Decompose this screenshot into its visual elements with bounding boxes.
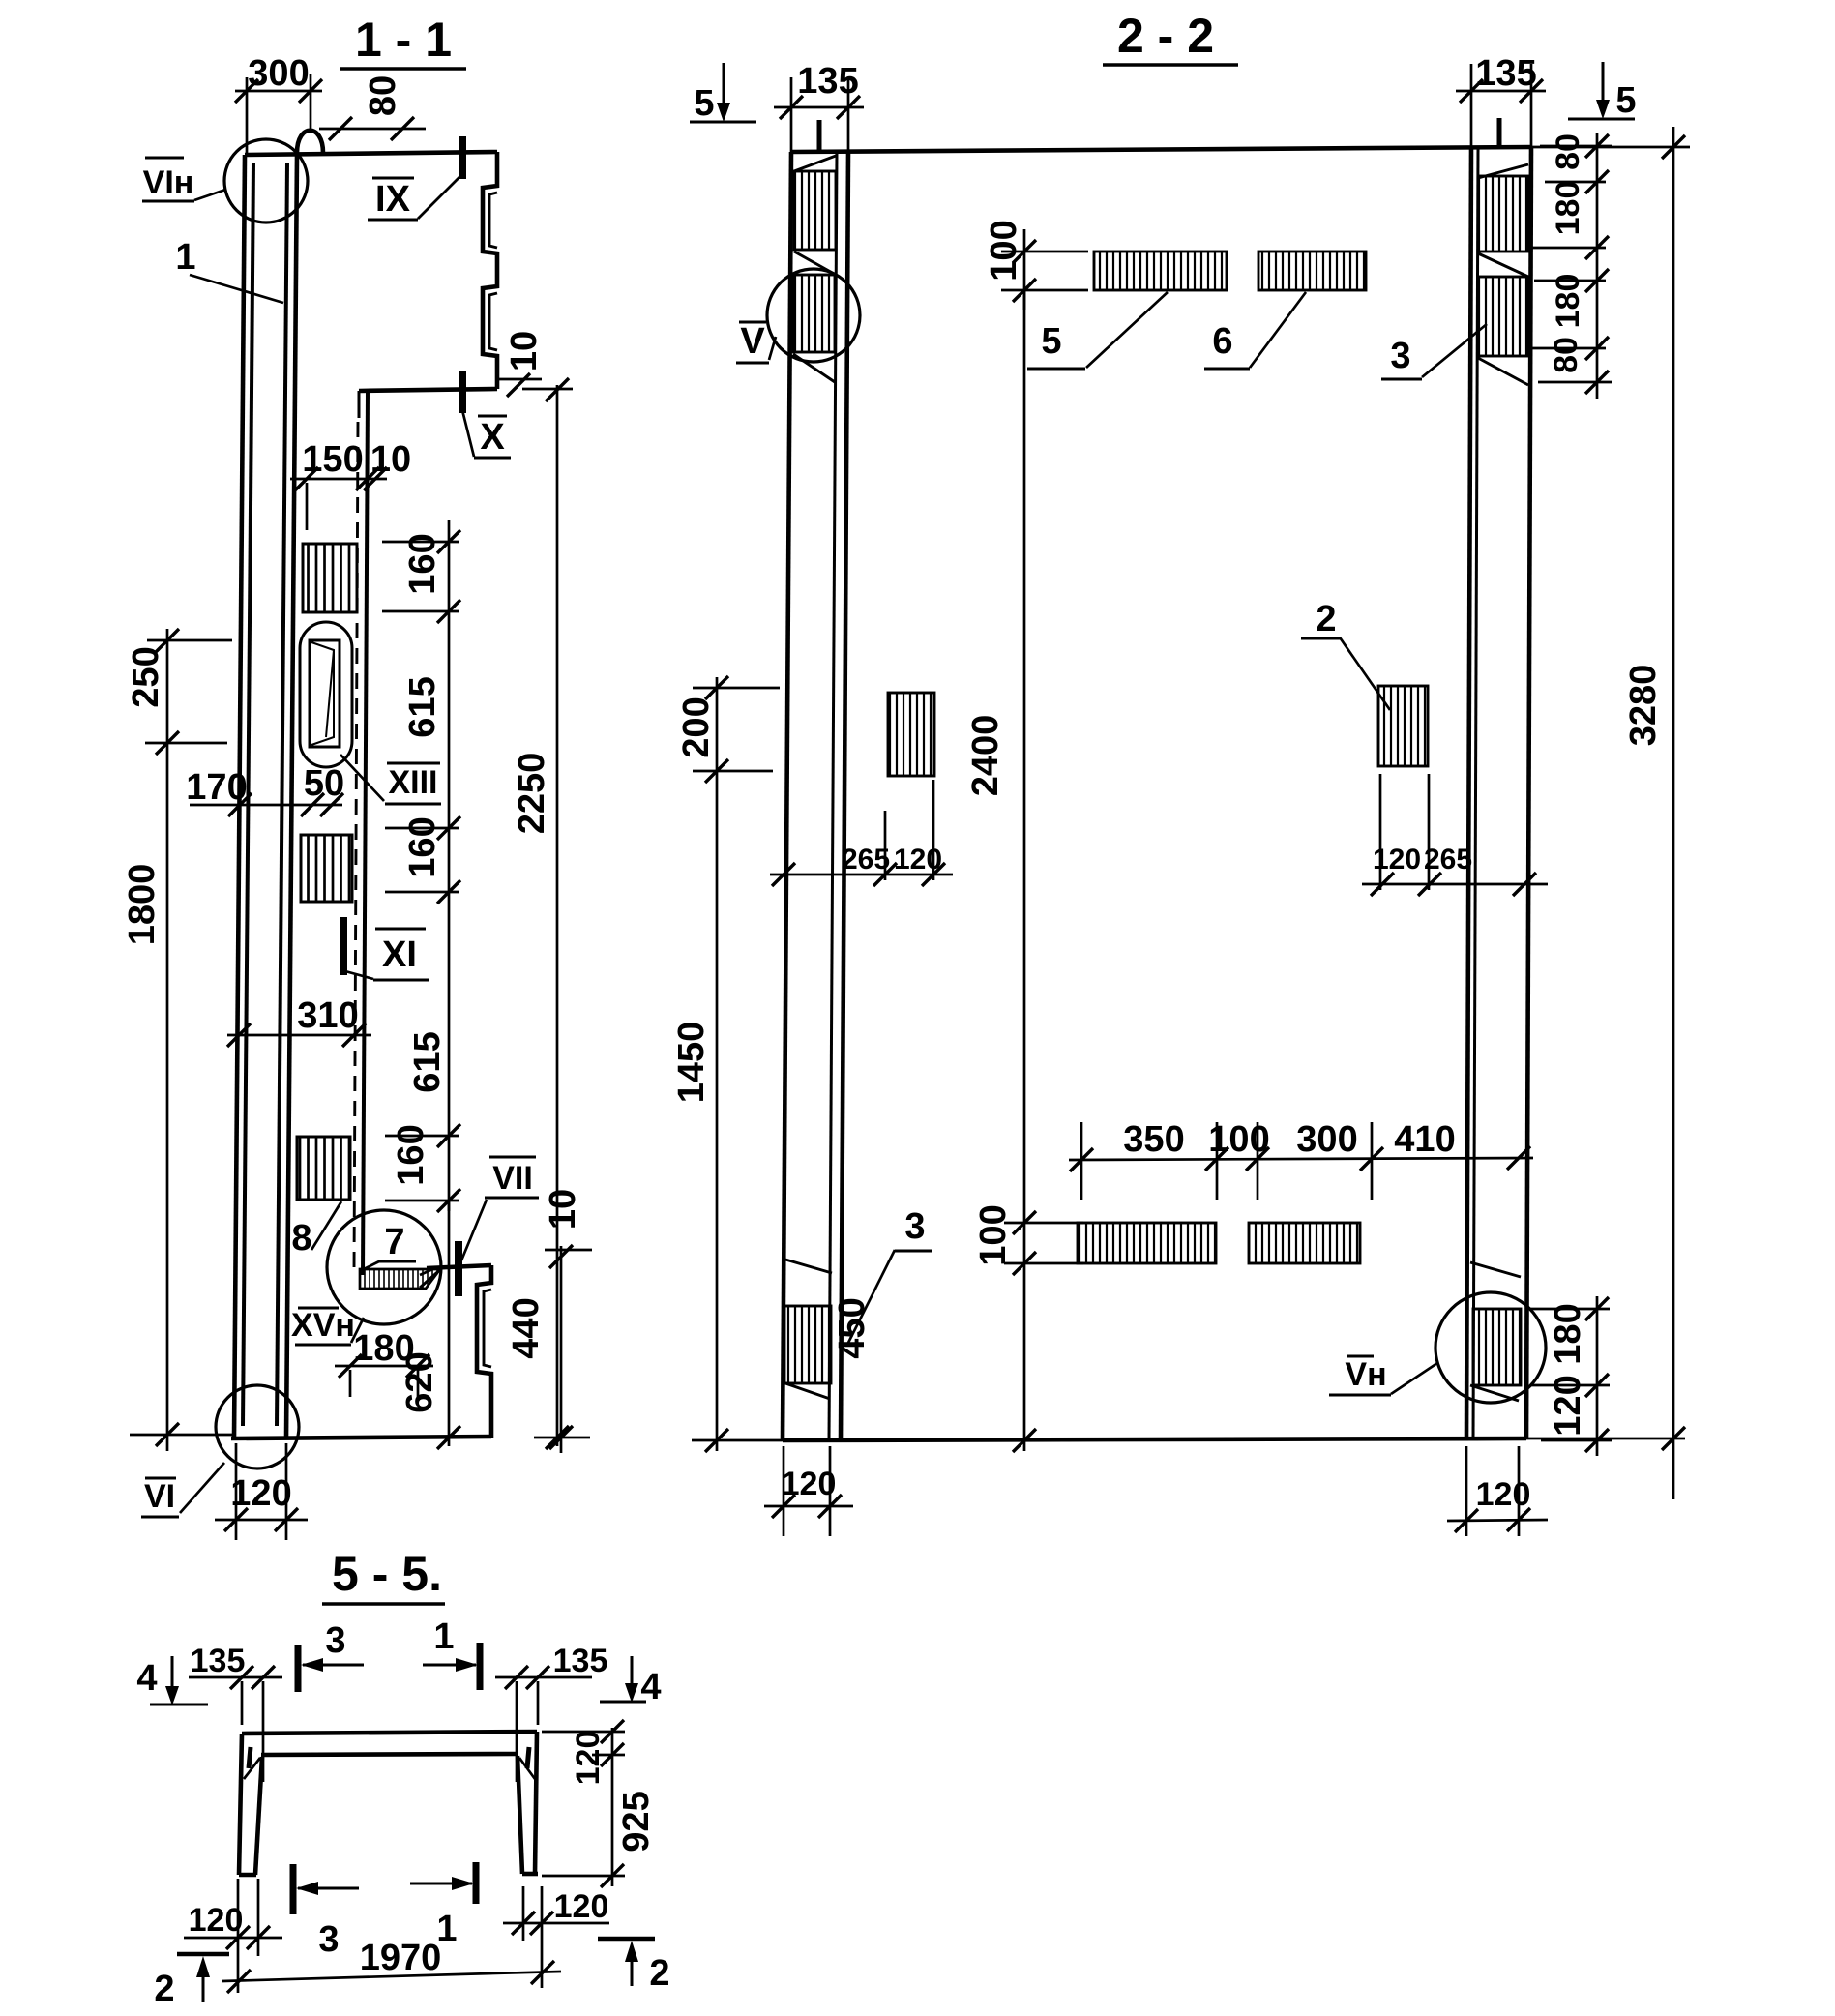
svg-text:120: 120	[230, 1473, 291, 1514]
svg-text:120: 120	[554, 1888, 609, 1925]
svg-text:XIII: XIII	[388, 764, 437, 801]
svg-text:X: X	[480, 417, 505, 458]
svg-text:160: 160	[391, 1124, 431, 1185]
svg-text:3: 3	[318, 1919, 339, 1960]
svg-text:2: 2	[154, 1969, 174, 2009]
svg-text:160: 160	[402, 816, 443, 877]
svg-text:5: 5	[694, 83, 714, 124]
svg-text:7: 7	[384, 1222, 404, 1262]
svg-text:170: 170	[186, 767, 247, 808]
svg-text:80: 80	[1550, 133, 1586, 170]
svg-text:265: 265	[842, 844, 890, 875]
svg-text:120: 120	[189, 1902, 244, 1939]
svg-text:2: 2	[1316, 599, 1336, 639]
svg-text:410: 410	[1394, 1119, 1455, 1160]
svg-text:3280: 3280	[1623, 665, 1664, 747]
svg-text:150: 150	[302, 439, 363, 480]
svg-text:180: 180	[1548, 1303, 1588, 1364]
svg-text:3: 3	[325, 1620, 345, 1661]
svg-text:350: 350	[1123, 1119, 1184, 1160]
svg-text:120: 120	[782, 1466, 837, 1502]
svg-text:925: 925	[616, 1791, 657, 1852]
svg-text:1 - 1: 1 - 1	[355, 13, 452, 67]
svg-text:3: 3	[904, 1206, 925, 1247]
svg-text:80: 80	[363, 75, 403, 116]
svg-text:3: 3	[1390, 336, 1410, 376]
svg-text:180: 180	[1550, 181, 1586, 236]
svg-text:2: 2	[649, 1953, 669, 1994]
svg-text:1970: 1970	[360, 1938, 442, 1978]
svg-text:XI: XI	[382, 934, 417, 975]
svg-text:300: 300	[1296, 1119, 1357, 1160]
svg-text:135: 135	[797, 61, 858, 102]
svg-text:XVн: XVн	[291, 1307, 355, 1344]
svg-text:200: 200	[676, 697, 717, 757]
svg-text:6: 6	[1212, 321, 1232, 362]
svg-text:IX: IX	[375, 179, 411, 220]
svg-text:160: 160	[402, 533, 443, 594]
svg-text:VIн: VIн	[143, 164, 194, 201]
svg-text:Vн: Vн	[1345, 1356, 1386, 1393]
svg-text:100: 100	[973, 1204, 1014, 1265]
svg-text:50: 50	[304, 763, 344, 804]
svg-text:5 - 5.: 5 - 5.	[332, 1547, 442, 1601]
svg-text:10: 10	[543, 1189, 583, 1230]
svg-text:1800: 1800	[122, 864, 163, 946]
svg-text:8: 8	[291, 1218, 311, 1259]
svg-text:120: 120	[1373, 844, 1421, 875]
svg-text:120: 120	[570, 1731, 607, 1786]
svg-text:180: 180	[1550, 274, 1586, 329]
svg-text:615: 615	[402, 676, 443, 737]
svg-text:100: 100	[1208, 1119, 1269, 1160]
svg-text:2400: 2400	[965, 715, 1006, 797]
svg-text:135: 135	[191, 1643, 246, 1679]
svg-text:5: 5	[1615, 80, 1636, 121]
svg-text:135: 135	[553, 1643, 608, 1679]
svg-text:VI: VI	[144, 1478, 175, 1515]
svg-text:10: 10	[504, 331, 545, 371]
svg-text:2 - 2: 2 - 2	[1117, 9, 1214, 63]
svg-text:V: V	[740, 321, 765, 362]
svg-text:4: 4	[136, 1658, 157, 1699]
svg-text:10: 10	[370, 439, 411, 480]
svg-text:100: 100	[984, 220, 1024, 281]
svg-text:VII: VII	[492, 1160, 533, 1197]
svg-text:250: 250	[126, 646, 166, 707]
svg-text:5: 5	[1041, 321, 1061, 362]
svg-text:135: 135	[1475, 53, 1536, 94]
svg-text:120: 120	[1548, 1375, 1588, 1436]
svg-text:120: 120	[1476, 1476, 1531, 1513]
svg-text:265: 265	[1424, 844, 1472, 875]
svg-text:615: 615	[407, 1031, 448, 1092]
svg-text:120: 120	[894, 844, 942, 875]
svg-text:1450: 1450	[671, 1022, 712, 1104]
svg-text:80: 80	[1548, 337, 1584, 373]
svg-text:2250: 2250	[512, 753, 552, 835]
svg-text:1: 1	[433, 1616, 454, 1657]
svg-text:440: 440	[506, 1297, 547, 1358]
svg-text:450: 450	[832, 1297, 873, 1358]
svg-text:300: 300	[248, 53, 309, 94]
svg-text:310: 310	[297, 995, 358, 1036]
svg-text:1: 1	[175, 237, 195, 278]
svg-text:620: 620	[400, 1351, 440, 1412]
